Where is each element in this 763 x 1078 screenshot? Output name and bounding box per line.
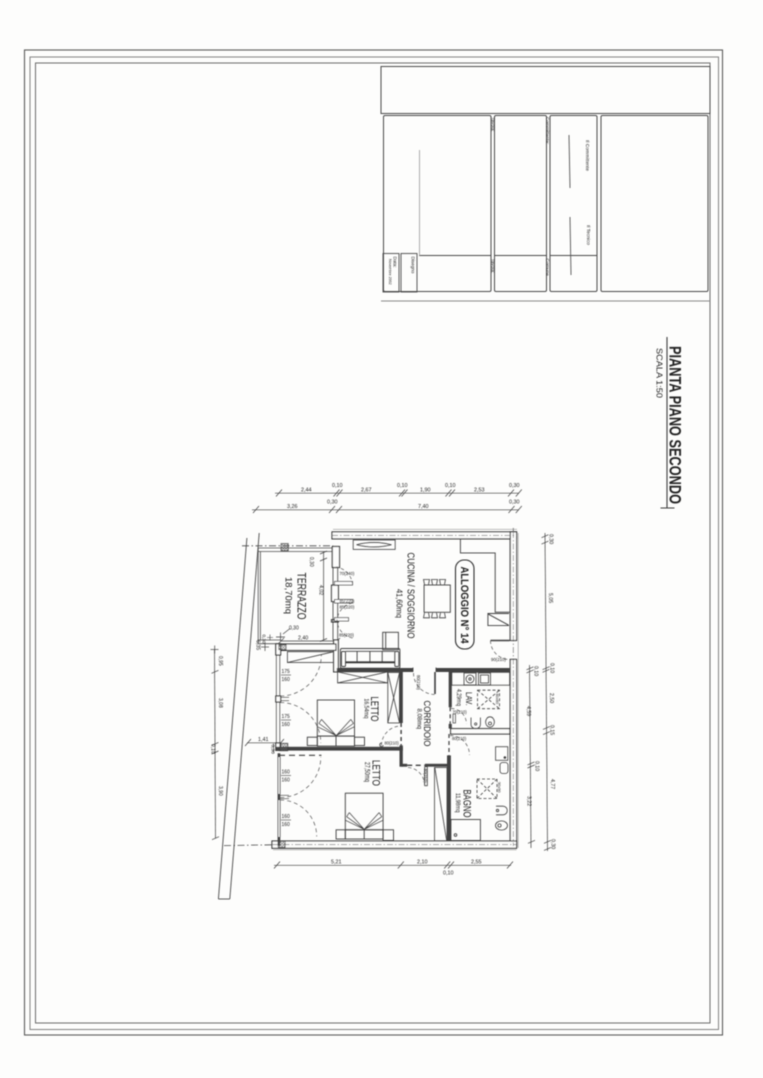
svg-text:4,29mq: 4,29mq bbox=[455, 689, 462, 706]
svg-text:0,10: 0,10 bbox=[332, 483, 343, 489]
svg-text:2,50: 2,50 bbox=[548, 693, 554, 703]
svg-text:0,30: 0,30 bbox=[509, 500, 520, 506]
svg-text:0,30: 0,30 bbox=[289, 626, 299, 632]
svg-text:0,30: 0,30 bbox=[509, 483, 520, 489]
svg-text:3,08: 3,08 bbox=[217, 698, 223, 708]
svg-text:0,30: 0,30 bbox=[327, 500, 338, 506]
svg-text:2,40: 2,40 bbox=[298, 636, 308, 642]
svg-text:ALLOGGIO N° 14: ALLOGGIO N° 14 bbox=[458, 567, 470, 644]
svg-text:27,50mq: 27,50mq bbox=[363, 762, 370, 782]
svg-text:BAGNO: BAGNO bbox=[461, 790, 473, 818]
svg-text:160: 160 bbox=[282, 822, 291, 828]
svg-text:CUCINA / SOGGIORNO: CUCINA / SOGGIORNO bbox=[405, 553, 416, 639]
svg-text:2,10: 2,10 bbox=[417, 860, 428, 866]
svg-text:0,30: 0,30 bbox=[308, 557, 314, 567]
svg-text:85(220): 85(220) bbox=[339, 633, 354, 638]
svg-text:0,30: 0,30 bbox=[550, 839, 556, 849]
svg-text:3,90: 3,90 bbox=[217, 786, 223, 796]
svg-text:160: 160 bbox=[282, 770, 291, 776]
svg-text:85(220): 85(220) bbox=[340, 599, 355, 604]
svg-text:4,59: 4,59 bbox=[525, 706, 531, 716]
svg-text:0,10: 0,10 bbox=[549, 663, 555, 673]
svg-text:160: 160 bbox=[282, 778, 291, 784]
svg-text:5,21: 5,21 bbox=[331, 860, 342, 866]
svg-text:160: 160 bbox=[282, 677, 291, 683]
svg-text:80(210): 80(210) bbox=[452, 736, 467, 741]
svg-text:Il Committente: Il Committente bbox=[584, 140, 590, 171]
svg-text:11,98mq: 11,98mq bbox=[454, 793, 461, 813]
svg-text:175: 175 bbox=[282, 714, 291, 720]
svg-text:Comune: Comune bbox=[545, 259, 550, 277]
svg-text:2,53: 2,53 bbox=[474, 488, 485, 494]
svg-text:1,90: 1,90 bbox=[420, 488, 431, 494]
svg-text:TERRAZZO: TERRAZZO bbox=[295, 573, 309, 620]
svg-text:0,95: 0,95 bbox=[217, 656, 223, 666]
svg-text:0,10: 0,10 bbox=[445, 483, 456, 489]
svg-text:8,08mq: 8,08mq bbox=[416, 709, 423, 730]
svg-text:0,10: 0,10 bbox=[443, 871, 454, 877]
svg-text:SCALA 1:50: SCALA 1:50 bbox=[655, 348, 665, 398]
svg-text:0,30: 0,30 bbox=[548, 534, 554, 544]
svg-text:Tavola:: Tavola: bbox=[491, 117, 496, 132]
svg-text:41,60mq: 41,60mq bbox=[395, 589, 404, 618]
svg-text:80(210): 80(210) bbox=[385, 741, 400, 746]
svg-text:0,10: 0,10 bbox=[533, 666, 539, 676]
svg-text:0,30: 0,30 bbox=[262, 635, 267, 644]
svg-text:175: 175 bbox=[282, 669, 291, 675]
svg-text:Committente:: Committente: bbox=[545, 117, 550, 144]
svg-text:16,54mq: 16,54mq bbox=[363, 699, 370, 719]
svg-text:Data:: Data: bbox=[393, 257, 398, 268]
svg-text:LAV.: LAV. bbox=[464, 692, 474, 706]
svg-text:80(210): 80(210) bbox=[423, 769, 428, 784]
svg-text:18,70mq: 18,70mq bbox=[284, 577, 294, 614]
svg-text:85(220): 85(220) bbox=[340, 605, 355, 610]
svg-text:2,44: 2,44 bbox=[301, 488, 312, 494]
svg-text:7,40: 7,40 bbox=[418, 504, 429, 510]
svg-text:Novembre 2002: Novembre 2002 bbox=[388, 259, 392, 285]
svg-text:Il Tecnico: Il Tecnico bbox=[585, 225, 591, 245]
svg-text:Tavola:: Tavola: bbox=[491, 259, 496, 274]
svg-text:Disegno: Disegno bbox=[411, 257, 416, 274]
svg-text:2,55: 2,55 bbox=[471, 860, 482, 866]
svg-text:160: 160 bbox=[282, 722, 291, 728]
svg-text:80x80: 80x80 bbox=[495, 694, 500, 705]
svg-text:0,10: 0,10 bbox=[210, 744, 216, 754]
svg-text:4,77: 4,77 bbox=[549, 779, 555, 789]
svg-text:90(210): 90(210) bbox=[491, 657, 506, 662]
svg-text:90x90: 90x90 bbox=[497, 782, 502, 793]
svg-text:LETTO: LETTO bbox=[370, 760, 382, 786]
svg-text:5,05: 5,05 bbox=[547, 593, 553, 603]
svg-text:4,02: 4,02 bbox=[318, 585, 324, 595]
svg-text:6,35: 6,35 bbox=[255, 640, 261, 650]
svg-text:PIANTA PIANO SECONDO: PIANTA PIANO SECONDO bbox=[666, 346, 684, 504]
svg-text:0,10: 0,10 bbox=[534, 761, 540, 771]
svg-text:2,67: 2,67 bbox=[361, 488, 372, 494]
svg-text:0,15: 0,15 bbox=[549, 725, 555, 735]
svg-text:80(210): 80(210) bbox=[416, 675, 421, 690]
svg-text:1,41: 1,41 bbox=[258, 737, 269, 743]
svg-text:160: 160 bbox=[282, 814, 291, 820]
svg-text:0,30: 0,30 bbox=[270, 745, 276, 755]
svg-text:70(240): 70(240) bbox=[340, 571, 355, 576]
svg-text:3,26: 3,26 bbox=[287, 504, 298, 510]
svg-text:0,10: 0,10 bbox=[397, 483, 408, 489]
svg-text:3,22: 3,22 bbox=[525, 796, 531, 806]
